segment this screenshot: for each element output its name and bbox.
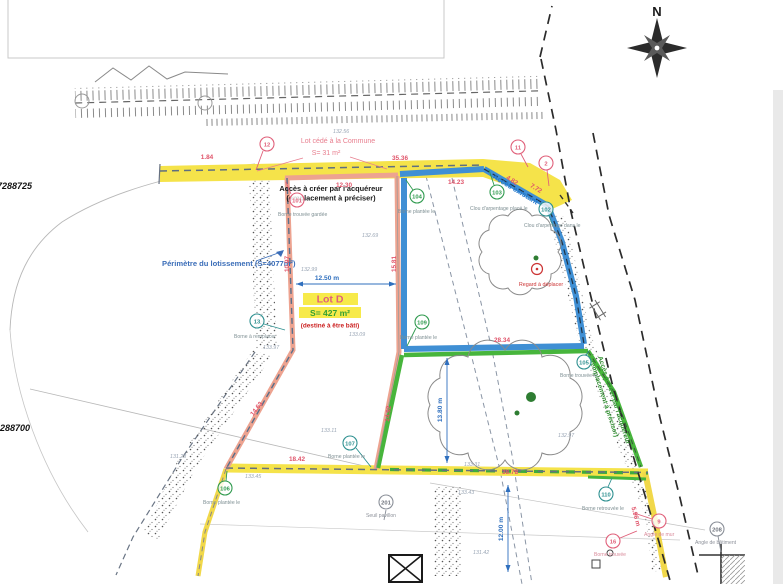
measurement: 18.42 <box>289 456 305 463</box>
tree-trunk-dot <box>515 411 520 416</box>
svg-text:Borne trouvée le: Borne trouvée le <box>560 373 598 379</box>
svg-text:Borne plantée le: Borne plantée le <box>400 335 437 341</box>
perimeter-label: Périmètre du lotissement (S=4077m²) <box>162 259 296 268</box>
measurement: 28.34 <box>494 337 510 344</box>
elevation: 132.56 <box>333 129 349 135</box>
survey-marker-110: 110 Borne retrouvée le <box>582 478 624 512</box>
elevation: 132.99 <box>301 267 317 273</box>
svg-text:Borne plantée le: Borne plantée le <box>203 500 240 506</box>
elevation: 133.45 <box>245 474 261 480</box>
svg-text:Borne à remplacer: Borne à remplacer <box>234 334 276 340</box>
elevation: 133.43 <box>458 490 474 496</box>
elevation: 131.42 <box>473 550 489 556</box>
elevation: 133.11 <box>321 428 337 434</box>
svg-text:101: 101 <box>292 198 302 204</box>
dim-arrow <box>506 565 511 572</box>
measurement: 1.84 <box>201 154 214 161</box>
dim-arrow <box>445 456 450 463</box>
svg-text:109: 109 <box>417 320 427 326</box>
lot-d-note: (destiné à être bâti) <box>301 323 360 330</box>
compass-rose: N <box>627 4 687 78</box>
blue-boundary-south <box>404 346 584 349</box>
measurement: 14.92 <box>384 405 393 422</box>
elevation: 133.09 <box>349 332 365 338</box>
site-plan-scan: N 7288725 288700 Lot cédé à la Commune S… <box>0 0 783 584</box>
measurement: 12.30 <box>336 182 352 189</box>
svg-text:102: 102 <box>541 207 551 213</box>
svg-text:Angle de bâtiment: Angle de bâtiment <box>695 540 737 546</box>
lot-d-area: S= 427 m² <box>310 308 350 318</box>
svg-text:201: 201 <box>381 500 391 506</box>
measurement: 10.97 <box>284 256 291 272</box>
adjacent-sheet-frame <box>8 0 444 58</box>
coordinate-bottom: 288700 <box>0 423 30 433</box>
dim-text: 13.80 m <box>437 398 444 422</box>
green-boundary-top <box>404 351 588 355</box>
svg-text:104: 104 <box>412 194 422 200</box>
elevation: 133.97 <box>263 345 280 351</box>
road-edge-3 <box>540 6 552 57</box>
salmon-boundary-top <box>285 175 398 178</box>
fence-hatch-strip <box>205 112 545 126</box>
survey-marker-201: 201 Seuil pavillon <box>366 495 396 520</box>
hedge-southwest <box>143 350 272 540</box>
svg-text:12: 12 <box>264 142 270 148</box>
tree-canopy-south <box>428 340 582 470</box>
survey-marker-13: 13 Borne à remplacer <box>234 314 285 340</box>
lot-cede-label: Lot cédé à la Commune <box>301 138 375 145</box>
survey-marker-208: 208 Angle de bâtiment <box>695 522 737 552</box>
svg-text:106: 106 <box>220 486 230 492</box>
measurement: 38.78 <box>502 469 518 476</box>
svg-text:Clou d'arpentage dans le: Clou d'arpentage dans le <box>524 223 581 229</box>
svg-text:Borne plantée le: Borne plantée le <box>398 209 435 215</box>
svg-text:16: 16 <box>610 539 617 545</box>
svg-text:Borne trouvée: Borne trouvée <box>594 552 626 558</box>
svg-text:Seuil pavillon: Seuil pavillon <box>366 513 396 519</box>
faint-curve-left <box>10 164 255 330</box>
manhole-label: Regard à déplacer <box>519 282 564 288</box>
svg-text:110: 110 <box>601 492 610 498</box>
svg-text:Clou d'arpentage placé le: Clou d'arpentage placé le <box>470 206 528 212</box>
svg-text:2: 2 <box>544 161 547 167</box>
elevation: 132.69 <box>362 233 378 239</box>
compass-center <box>655 46 660 51</box>
coordinate-top: 7288725 <box>0 181 33 191</box>
building-corner-hatch <box>721 555 745 584</box>
svg-text:107: 107 <box>345 441 355 447</box>
measurement: 5.96 m <box>629 506 641 527</box>
tree-trunk-dot <box>534 256 539 261</box>
coordinate-labels: 7288725 288700 <box>0 181 33 433</box>
svg-text:103: 103 <box>492 190 502 196</box>
svg-text:105: 105 <box>579 360 589 366</box>
access-note-top-line1: Accès à créer par l'acquéreur <box>279 184 382 193</box>
svg-text:11: 11 <box>515 145 522 151</box>
measurement: 35.36 <box>392 155 408 162</box>
survey-marker-16: 16 Borne trouvée <box>594 531 637 558</box>
elevation: 131.28 <box>170 454 186 460</box>
dim-text: 12.00 m <box>498 517 505 541</box>
top-embankment <box>75 66 545 126</box>
manhole-center-dot <box>536 268 539 271</box>
svg-text:Borne trouvée gardée: Borne trouvée gardée <box>278 212 327 218</box>
slope-zigzag-symbol <box>95 66 228 82</box>
compass-north-label: N <box>652 4 661 19</box>
roads <box>540 6 698 584</box>
dim-arrow <box>506 485 511 492</box>
measurement: 14.23 <box>448 179 464 186</box>
lot-cede-area: S= 31 m² <box>312 150 341 157</box>
gate-symbol <box>587 298 608 321</box>
dim-arrow <box>389 282 396 287</box>
svg-text:13: 13 <box>254 319 261 325</box>
hedge-south <box>434 487 461 576</box>
measurement: 15.81 <box>391 256 398 272</box>
svg-text:Angle de mur: Angle de mur <box>644 532 675 538</box>
tree-trunk-dot <box>526 392 536 402</box>
lot-d-title: Lot D <box>317 294 344 306</box>
svg-text:Borne retrouvée le: Borne retrouvée le <box>582 506 624 512</box>
utility-dashed-2 <box>452 178 532 584</box>
dim-text: 12.50 m <box>315 275 339 282</box>
green-stub-southeast <box>588 477 646 479</box>
svg-text:208: 208 <box>712 527 722 533</box>
dim-arrow <box>296 282 303 287</box>
scan-edge-shadow <box>773 90 783 584</box>
elevation: 133.31 <box>464 462 480 468</box>
svg-text:Borne plantée le: Borne plantée le <box>328 454 365 460</box>
elevation: 132.97 <box>558 433 575 439</box>
small-square-symbol <box>592 560 600 568</box>
